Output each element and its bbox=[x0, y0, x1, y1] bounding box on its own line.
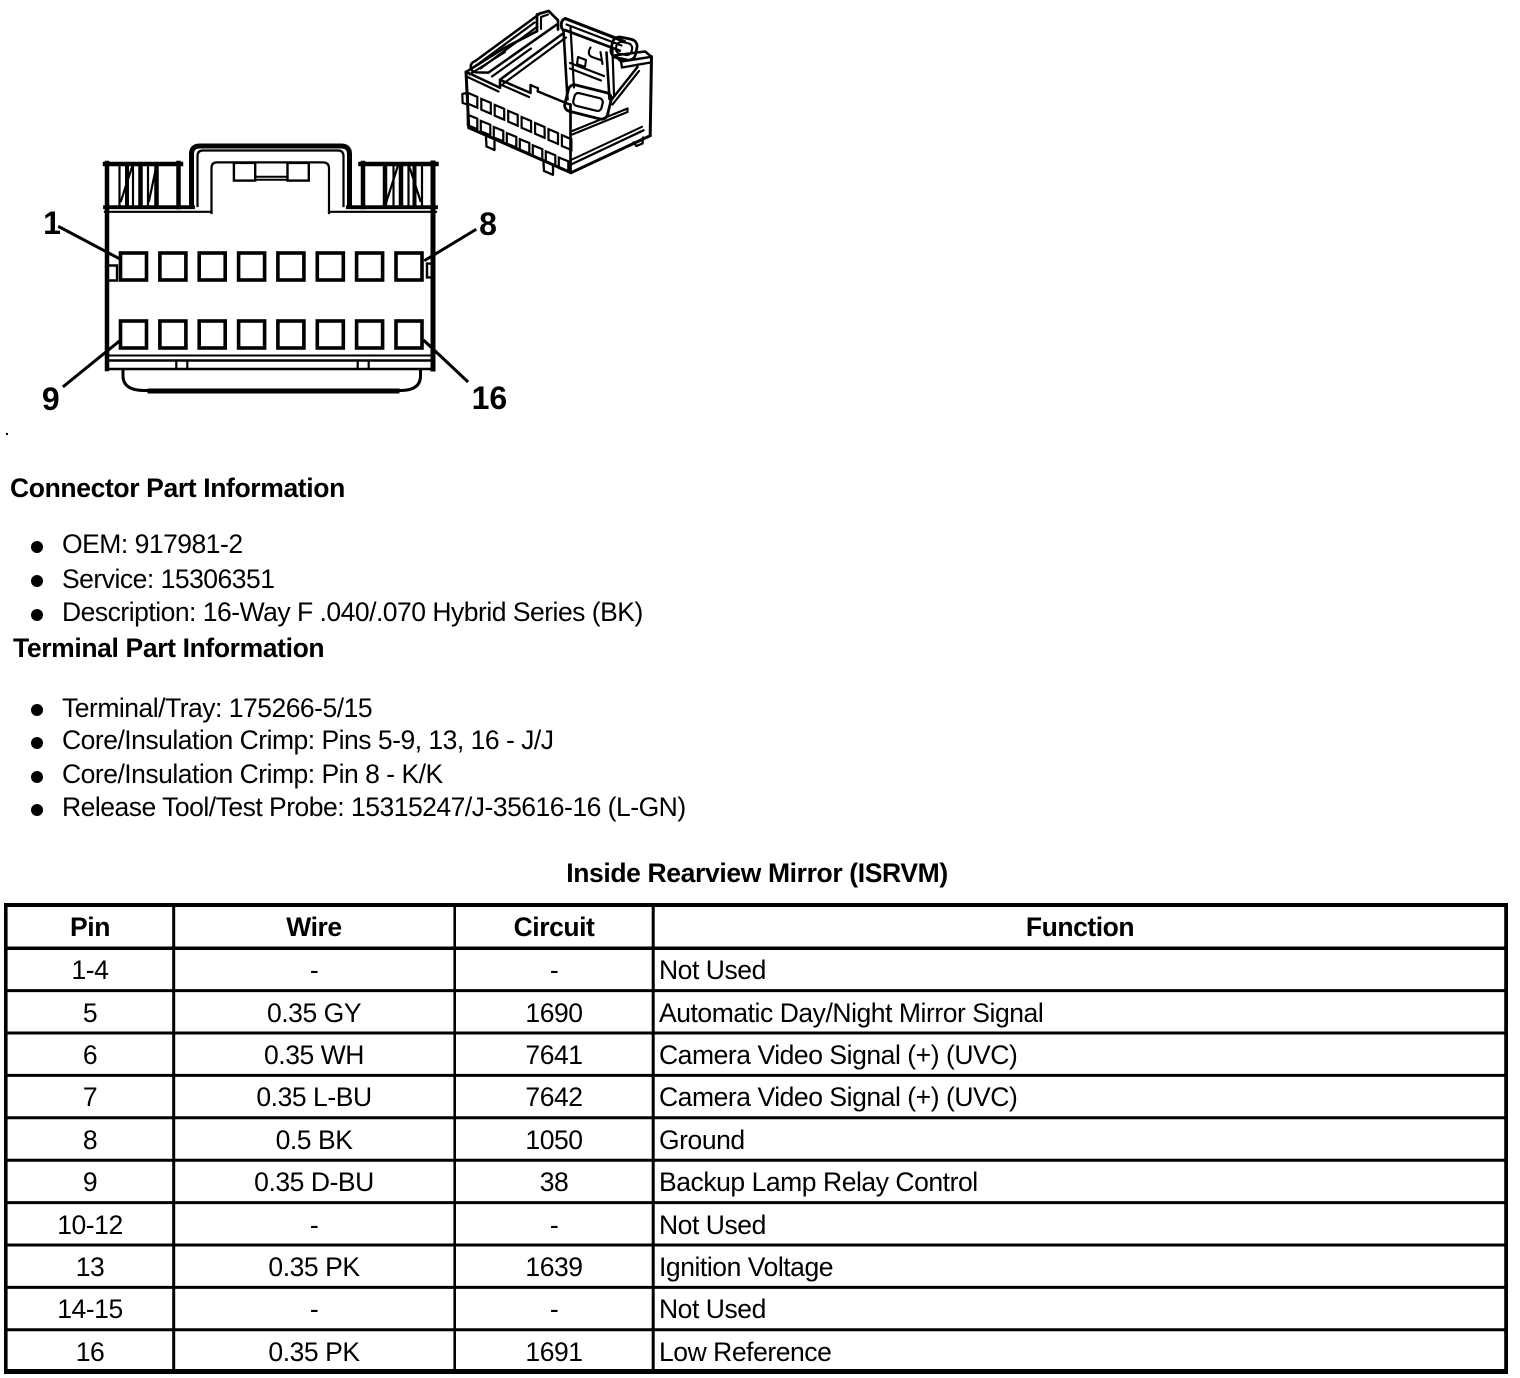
svg-text:8: 8 bbox=[479, 206, 497, 242]
svg-text:16: 16 bbox=[472, 380, 508, 416]
svg-text:9: 9 bbox=[42, 381, 60, 417]
svg-text:1: 1 bbox=[43, 205, 61, 241]
